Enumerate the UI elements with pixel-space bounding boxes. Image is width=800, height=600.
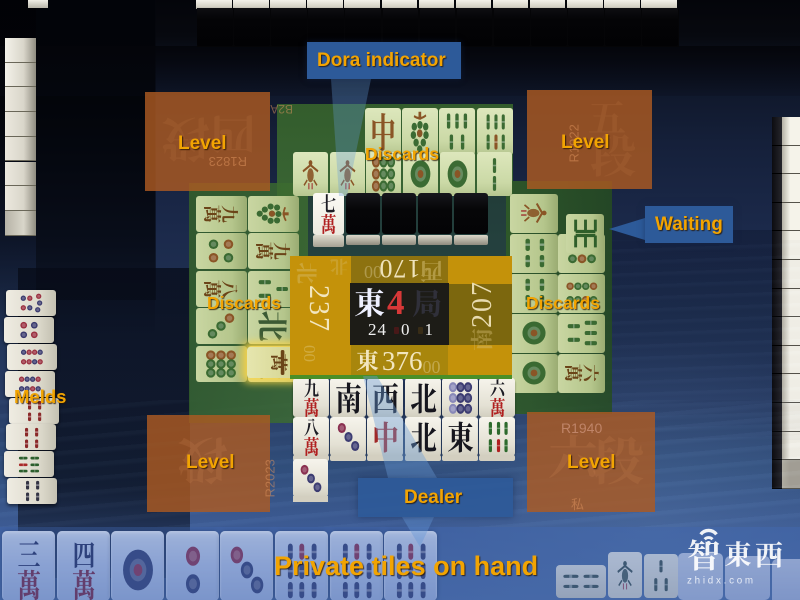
svg-text:zhidx.com: zhidx.com: [687, 575, 756, 586]
